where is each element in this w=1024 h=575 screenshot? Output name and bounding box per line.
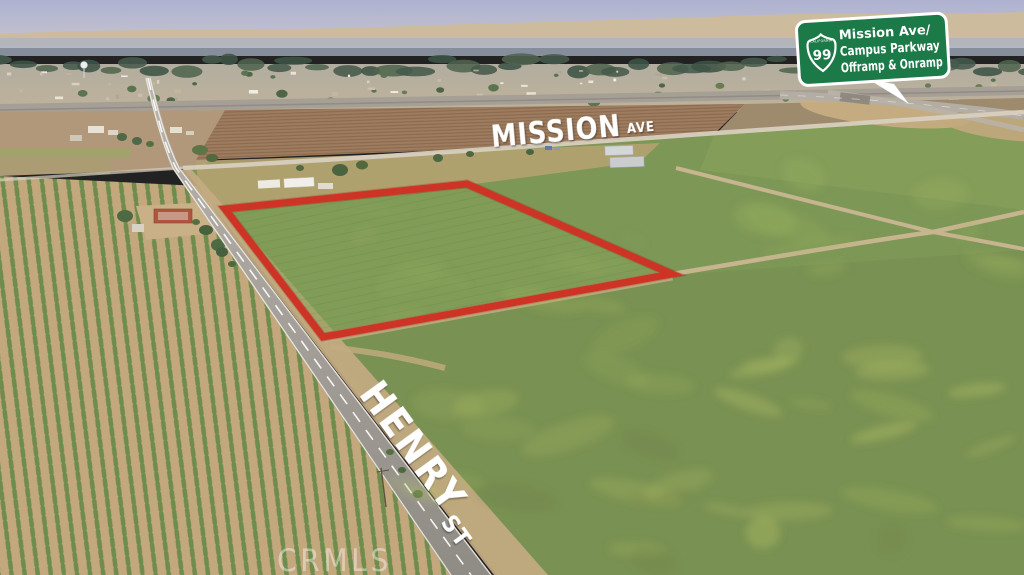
treeline-tree bbox=[171, 65, 202, 77]
green-strip-left bbox=[0, 148, 130, 158]
town-building bbox=[588, 81, 593, 84]
town-tree bbox=[241, 71, 248, 76]
treeline-tree bbox=[628, 58, 649, 70]
town-tree bbox=[78, 90, 88, 97]
treeline-tree bbox=[717, 61, 744, 71]
treeline-tree bbox=[396, 67, 435, 77]
treeline-tree bbox=[305, 64, 329, 70]
town-building bbox=[116, 95, 119, 99]
mission-ave-suffix: AVE bbox=[626, 120, 655, 137]
treeline-tree bbox=[767, 56, 787, 62]
watermark: CRMLS bbox=[277, 543, 392, 575]
town-tree bbox=[270, 75, 275, 79]
town-building bbox=[106, 97, 110, 100]
town-building bbox=[332, 92, 338, 96]
town-tree bbox=[276, 90, 287, 98]
town-building bbox=[500, 82, 503, 84]
treeline-tree bbox=[140, 66, 169, 76]
treeline-tree bbox=[973, 67, 1002, 76]
town-building bbox=[655, 73, 661, 75]
town-tree bbox=[402, 91, 407, 95]
town-building bbox=[558, 71, 562, 73]
town-building bbox=[521, 85, 528, 87]
treeline-tree bbox=[267, 64, 291, 72]
town-building bbox=[348, 75, 350, 77]
town-tree bbox=[715, 83, 724, 89]
town-building bbox=[616, 71, 618, 73]
town-tree bbox=[436, 87, 444, 93]
town-tree bbox=[991, 79, 996, 82]
treeline-tree bbox=[101, 67, 122, 74]
town-building bbox=[391, 91, 399, 93]
treeline-tree bbox=[998, 60, 1021, 72]
town-building bbox=[138, 94, 142, 97]
town-building bbox=[66, 73, 72, 75]
town-tree bbox=[488, 84, 499, 91]
town-building bbox=[19, 89, 23, 92]
town-building bbox=[367, 81, 370, 84]
town-tree bbox=[113, 71, 116, 73]
treeline-tree bbox=[10, 61, 37, 69]
treeline-tree bbox=[741, 58, 768, 67]
town-building bbox=[579, 70, 583, 72]
aerial-photo: MISSION AVE HENRY ST CRMLS CALIFORNIA 99… bbox=[0, 0, 1024, 575]
town-tree bbox=[659, 83, 665, 87]
town-building bbox=[473, 70, 478, 72]
town-building bbox=[249, 90, 258, 94]
treeline-tree bbox=[539, 54, 570, 64]
town-building bbox=[991, 83, 997, 87]
treeline-tree bbox=[274, 57, 312, 65]
town-building bbox=[175, 89, 181, 93]
treeline-tree bbox=[237, 58, 264, 71]
route-number: 99 bbox=[812, 47, 832, 64]
town-tree bbox=[381, 73, 388, 78]
town-building bbox=[662, 77, 667, 79]
town-building bbox=[72, 83, 80, 86]
town-building bbox=[157, 80, 159, 84]
treeline-tree bbox=[220, 54, 238, 65]
town-building bbox=[613, 79, 616, 82]
town-building bbox=[742, 77, 745, 80]
town-building bbox=[40, 73, 43, 76]
town-tree bbox=[384, 70, 387, 72]
treeline-tree bbox=[202, 55, 222, 63]
treeline-tree bbox=[36, 65, 58, 72]
treeline-tree bbox=[601, 67, 629, 77]
town-tree bbox=[127, 86, 136, 93]
town-building bbox=[7, 73, 11, 76]
town-building bbox=[121, 76, 128, 78]
green-strip-left2 bbox=[0, 160, 110, 174]
town-building bbox=[108, 83, 111, 86]
town-tree bbox=[192, 82, 197, 85]
town-tree bbox=[668, 73, 671, 75]
town-building bbox=[291, 72, 296, 75]
town-tree bbox=[925, 83, 931, 87]
highway-sign: CALIFORNIA 99 Mission Ave/ Campus Parkwa… bbox=[796, 13, 950, 86]
town-building bbox=[438, 79, 441, 82]
treeline-tree bbox=[118, 57, 147, 68]
treeline-tree bbox=[948, 58, 975, 70]
town-building bbox=[368, 88, 376, 91]
town-tree bbox=[554, 74, 559, 77]
town-building bbox=[580, 83, 582, 85]
treeline-tree bbox=[502, 53, 541, 65]
town-building bbox=[55, 97, 63, 100]
